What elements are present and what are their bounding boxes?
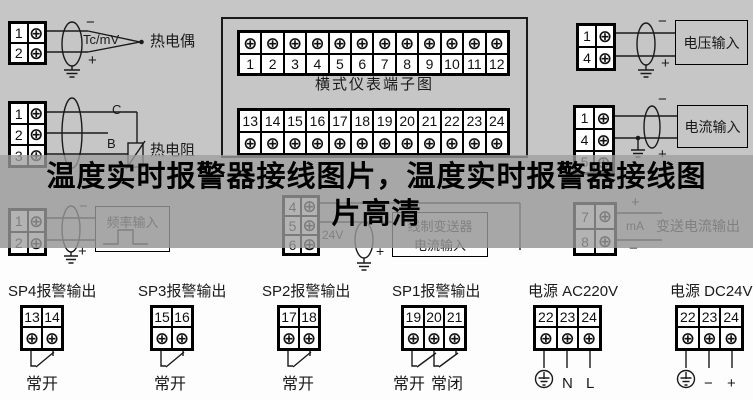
- screw-icon: ⊕: [261, 132, 283, 154]
- terminal-number: 22: [677, 307, 699, 327]
- voltage-minus-label: −: [658, 13, 667, 30]
- terminal-number: 1: [239, 54, 261, 74]
- dc-plus-label: +: [727, 375, 736, 392]
- screw-icon: ⊕: [418, 32, 440, 54]
- screw-icon: ⊕: [557, 327, 579, 349]
- tc-plus-label: +: [88, 52, 97, 69]
- screw-icon: ⊕: [152, 327, 172, 349]
- current-minus-label: −: [658, 91, 667, 108]
- screw-icon: ⊕: [306, 132, 328, 154]
- terminal-number: 1: [10, 103, 28, 124]
- dc-minus-label: −: [704, 375, 713, 392]
- screw-icon: ⊕: [699, 327, 721, 349]
- sp2-output-label: SP2报警输出: [262, 283, 350, 300]
- screw-icon: ⊕: [441, 132, 463, 154]
- sp1-output-label: SP1报警输出: [392, 283, 480, 300]
- terminal-number: 20: [396, 110, 418, 132]
- tc-wire-type-label: Tc/mV: [83, 33, 119, 48]
- terminal-number: 24: [720, 307, 742, 327]
- screw-icon: ⊕: [396, 132, 418, 154]
- terminal-number: 15: [284, 110, 306, 132]
- thermocouple-terminal-block: 1⊕2⊕: [8, 21, 47, 65]
- screw-icon: ⊕: [172, 327, 192, 349]
- screw-icon: ⊕: [239, 32, 261, 54]
- ac-power-terminal-block: 222324⊕⊕⊕: [533, 305, 602, 351]
- terminal-number: 23: [463, 110, 485, 132]
- screw-icon: ⊕: [239, 132, 261, 154]
- terminal-number: 10: [441, 54, 463, 74]
- terminal-number: 12: [486, 54, 508, 74]
- terminal-number: 1: [578, 25, 596, 47]
- sp1-nc-contact-label: 常闭: [431, 376, 463, 394]
- terminal-number: 16: [172, 307, 192, 327]
- dc-power-terminal-block: 222324⊕⊕⊕: [675, 305, 744, 351]
- current-wires: [615, 106, 677, 157]
- terminal-number: 7: [373, 54, 395, 74]
- sp4-contact-label: 常开: [26, 376, 58, 394]
- sp1-no-contact-label: 常开: [393, 376, 425, 394]
- terminal-strip-13-24: 131415161718192021222324⊕⊕⊕⊕⊕⊕⊕⊕⊕⊕⊕⊕: [237, 108, 510, 156]
- sp3-terminal-block: 1516⊕⊕: [150, 305, 194, 351]
- sp4-terminal-block: 1314⊕⊕: [20, 305, 64, 351]
- screw-icon: ⊕: [720, 327, 742, 349]
- tc-minus-label: −: [86, 14, 95, 31]
- terminal-number: 18: [299, 307, 319, 327]
- terminal-strip-1-12: ⊕⊕⊕⊕⊕⊕⊕⊕⊕⊕⊕⊕123456789101112: [237, 30, 510, 76]
- terminal-number: 23: [699, 307, 721, 327]
- terminal-number: 24: [486, 110, 508, 132]
- terminal-number: 24: [578, 307, 600, 327]
- screw-icon: ⊕: [486, 32, 508, 54]
- terminal-number: 9: [418, 54, 440, 74]
- screw-icon: ⊕: [284, 132, 306, 154]
- rtd-wire-c-label: C: [112, 103, 121, 118]
- terminal-number: 11: [463, 54, 485, 74]
- screw-icon: ⊕: [594, 129, 613, 151]
- sp4-output-label: SP4报警输出: [8, 283, 96, 300]
- terminal-number: 3: [284, 54, 306, 74]
- screw-icon: ⊕: [28, 43, 46, 63]
- earth-icon: [681, 372, 692, 385]
- banner-title-line2: 片高清: [331, 196, 421, 233]
- screw-icon: ⊕: [373, 132, 395, 154]
- screw-icon: ⊕: [403, 327, 424, 349]
- terminal-number: 4: [575, 129, 594, 151]
- dc-power-label: 电源 DC24V: [670, 283, 753, 300]
- terminal-number: 1: [10, 23, 28, 43]
- sp3-contact-label: 常开: [154, 376, 186, 394]
- screw-icon: ⊕: [418, 132, 440, 154]
- screw-icon: ⊕: [424, 327, 445, 349]
- rtd-wire-b-label: B: [107, 137, 116, 152]
- terminal-number: 18: [351, 110, 373, 132]
- terminal-number: 16: [306, 110, 328, 132]
- screw-icon: ⊕: [299, 327, 319, 349]
- screw-icon: ⊕: [28, 23, 46, 43]
- terminal-number: 17: [279, 307, 299, 327]
- screw-icon: ⊕: [535, 327, 557, 349]
- terminal-number: 8: [396, 54, 418, 74]
- screw-icon: ⊕: [463, 32, 485, 54]
- screw-icon: ⊕: [594, 107, 613, 129]
- terminal-number: 4: [578, 47, 596, 69]
- screw-icon: ⊕: [578, 327, 600, 349]
- ac-power-label: 电源 AC220V: [528, 283, 618, 300]
- terminal-number: 2: [261, 54, 283, 74]
- terminal-number: 22: [535, 307, 557, 327]
- terminal-number: 13: [22, 307, 42, 327]
- terminal-number: 4: [306, 54, 328, 74]
- screw-icon: ⊕: [28, 124, 46, 145]
- terminal-number: 5: [329, 54, 351, 74]
- terminal-number: 17: [329, 110, 351, 132]
- banner-title-line1: 温度实时报警器接线图片，温度实时报警器接线图: [46, 159, 706, 196]
- screw-icon: ⊕: [677, 327, 699, 349]
- screw-icon: ⊕: [42, 327, 62, 349]
- ac-live-label: L: [586, 375, 594, 392]
- screw-icon: ⊕: [444, 327, 465, 349]
- terminal-number: 6: [351, 54, 373, 74]
- screw-icon: ⊕: [463, 132, 485, 154]
- terminal-number: 21: [418, 110, 440, 132]
- screw-icon: ⊕: [373, 32, 395, 54]
- terminal-number: 15: [152, 307, 172, 327]
- screw-icon: ⊕: [596, 47, 614, 69]
- screw-icon: ⊕: [261, 32, 283, 54]
- voltage-input-box: 电压输入: [675, 20, 748, 65]
- screw-icon: ⊕: [596, 25, 614, 47]
- voltage-terminal-block: 1⊕4⊕: [576, 23, 616, 71]
- terminal-number: 13: [239, 110, 261, 132]
- wiring-diagram-page: 1⊕2⊕ 1⊕2⊕3⊕ 1⊕2⊕ ⊕⊕⊕⊕⊕⊕⊕⊕⊕⊕⊕⊕12345678910…: [0, 0, 753, 400]
- terminal-number: 2: [10, 43, 28, 63]
- current-input-box: 电流输入: [677, 105, 748, 148]
- screw-icon: ⊕: [351, 32, 373, 54]
- terminal-number: 19: [403, 307, 424, 327]
- screw-icon: ⊕: [396, 32, 418, 54]
- terminal-number: 2: [10, 124, 28, 145]
- screw-icon: ⊕: [22, 327, 42, 349]
- terminal-number: 19: [373, 110, 395, 132]
- terminal-number: 23: [557, 307, 579, 327]
- sp2-contact-label: 常开: [282, 376, 314, 394]
- voltage-input-label: 电压输入: [684, 33, 740, 53]
- watermark-banner: 温度实时报警器接线图片，温度实时报警器接线图 片高清: [0, 155, 753, 248]
- screw-icon: ⊕: [284, 32, 306, 54]
- terminal-number: 22: [441, 110, 463, 132]
- screw-icon: ⊕: [279, 327, 299, 349]
- terminal-number: 21: [444, 307, 465, 327]
- terminal-number: 1: [575, 107, 594, 129]
- screw-icon: ⊕: [329, 32, 351, 54]
- ac-neutral-label: N: [562, 375, 573, 392]
- screw-icon: ⊕: [306, 32, 328, 54]
- terminal-diagram-title: 横式仪表端子图: [222, 76, 527, 93]
- screw-icon: ⊕: [486, 132, 508, 154]
- sp2-terminal-block: 1718⊕⊕: [277, 305, 321, 351]
- earth-icon: [539, 372, 550, 385]
- screw-icon: ⊕: [351, 132, 373, 154]
- terminal-number: 14: [261, 110, 283, 132]
- screw-icon: ⊕: [28, 103, 46, 124]
- sp1-terminal-block: 192021⊕⊕⊕: [401, 305, 467, 351]
- screw-icon: ⊕: [441, 32, 463, 54]
- thermocouple-label: 热电偶: [150, 33, 195, 50]
- screw-icon: ⊕: [329, 132, 351, 154]
- terminal-number: 20: [424, 307, 445, 327]
- voltage-plus-label: +: [661, 55, 670, 72]
- current-input-label: 电流输入: [685, 117, 741, 137]
- sp3-output-label: SP3报警输出: [138, 283, 226, 300]
- terminal-number: 14: [42, 307, 62, 327]
